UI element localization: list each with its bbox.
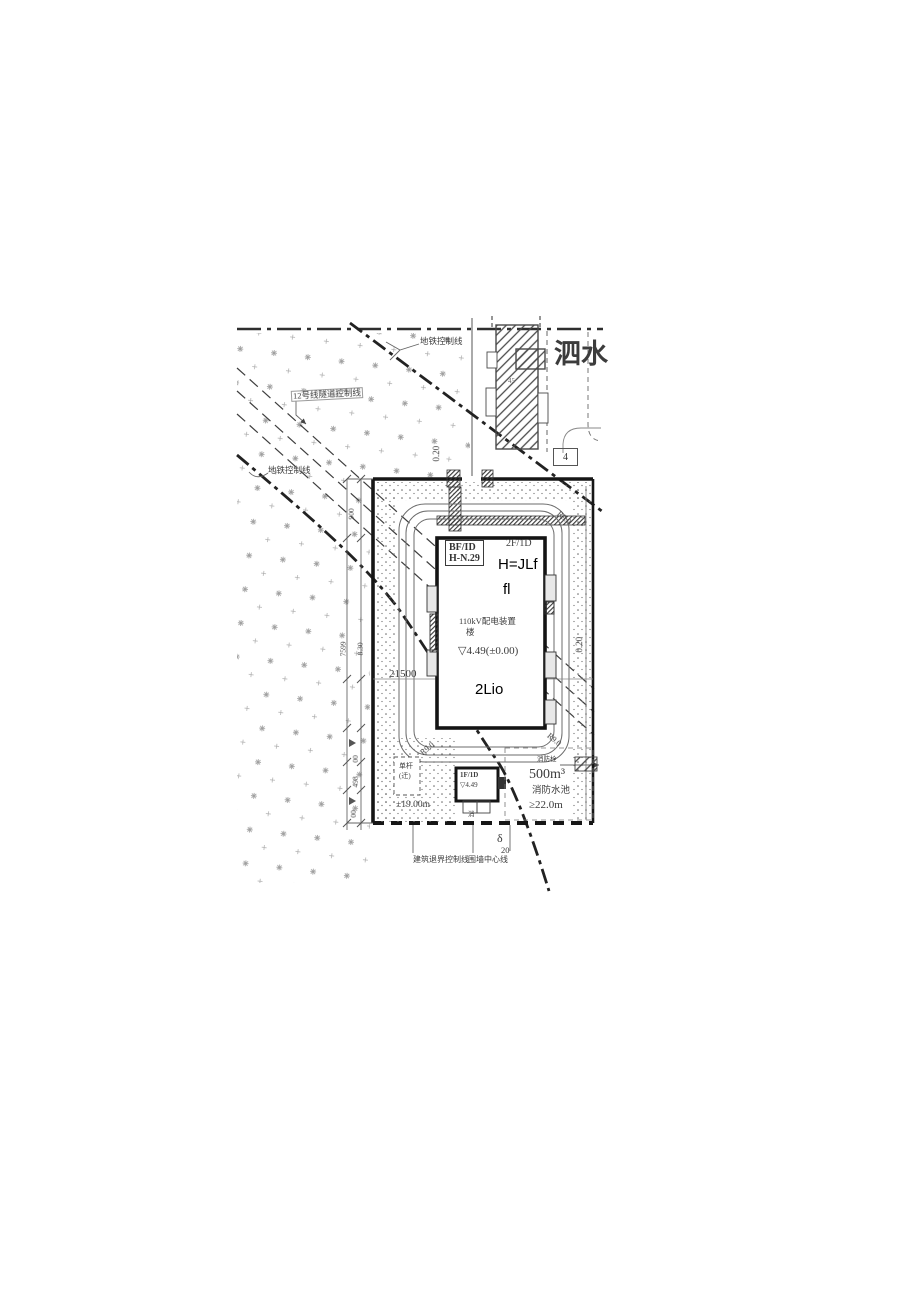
existing-building-mark: 45 — [508, 378, 515, 385]
basement-tag-box: BF/ID H-N.29 — [445, 540, 484, 566]
overlay-text-3: 2Lio — [475, 682, 503, 697]
dimension-7599: 7599 — [340, 641, 348, 656]
dimension-830: 8.30 — [357, 642, 365, 655]
overlay-text-1: H=JLf — [498, 557, 538, 572]
clearance-dimension: ±19.00m — [396, 801, 430, 811]
pole-label-line2: (迁) — [399, 773, 411, 780]
site-width-dimension: 21500 — [389, 669, 417, 681]
dimension-498: 498 — [352, 776, 360, 787]
fire-pool-name: 消防水池 — [532, 787, 570, 797]
building-name-line2: 楼 — [466, 628, 475, 637]
dimension-00a: 00 — [352, 755, 360, 763]
fire-pool-distance: ≥22.0m — [529, 800, 563, 812]
boundary-label-left: 建筑退界控制线 — [413, 856, 469, 864]
boundary-label-right: 围墙中心线 — [468, 856, 508, 864]
document-page: 泗水 地铁控制线 12号线隧道控制线 地铁控制线 0.20 0.20 45 4 … — [0, 0, 920, 1301]
delta-symbol: δ — [497, 832, 503, 845]
metro-control-line-label-top: 地铁控制线 — [420, 337, 463, 346]
pump-house-elevation: ▽4.49 — [460, 782, 478, 789]
dimension-00b: 00 — [350, 810, 358, 818]
basement-tag-line2: H-N.29 — [449, 553, 480, 564]
fire-pool-volume: 500m³ — [529, 768, 565, 783]
pole-label-line1: 单杆 — [399, 763, 413, 770]
metro-control-line-label-left: 地铁控制线 — [268, 466, 311, 475]
delta-value: 20 — [501, 846, 510, 855]
pump-house-mark: 消 — [468, 812, 475, 819]
overlay-text-2: fl — [503, 582, 511, 597]
building-name-line1: 110kV配电装置 — [459, 617, 516, 626]
curb-offset-top: 0.20 — [432, 446, 441, 462]
basement-tag-line1: BF/ID — [449, 542, 480, 553]
building-elevation: ▽4.49(±0.00) — [458, 646, 518, 658]
hydrant-label: 消防栓 — [537, 757, 557, 764]
pump-house-tag: 1F/1D — [460, 772, 478, 779]
floors-tag: 2F/1D — [506, 539, 532, 550]
street-name-label: 泗水 — [554, 340, 608, 368]
parcel-number-box: 4 — [553, 448, 578, 466]
curb-offset-right: 0.20 — [575, 637, 584, 653]
dimension-900: 900 — [348, 508, 356, 519]
